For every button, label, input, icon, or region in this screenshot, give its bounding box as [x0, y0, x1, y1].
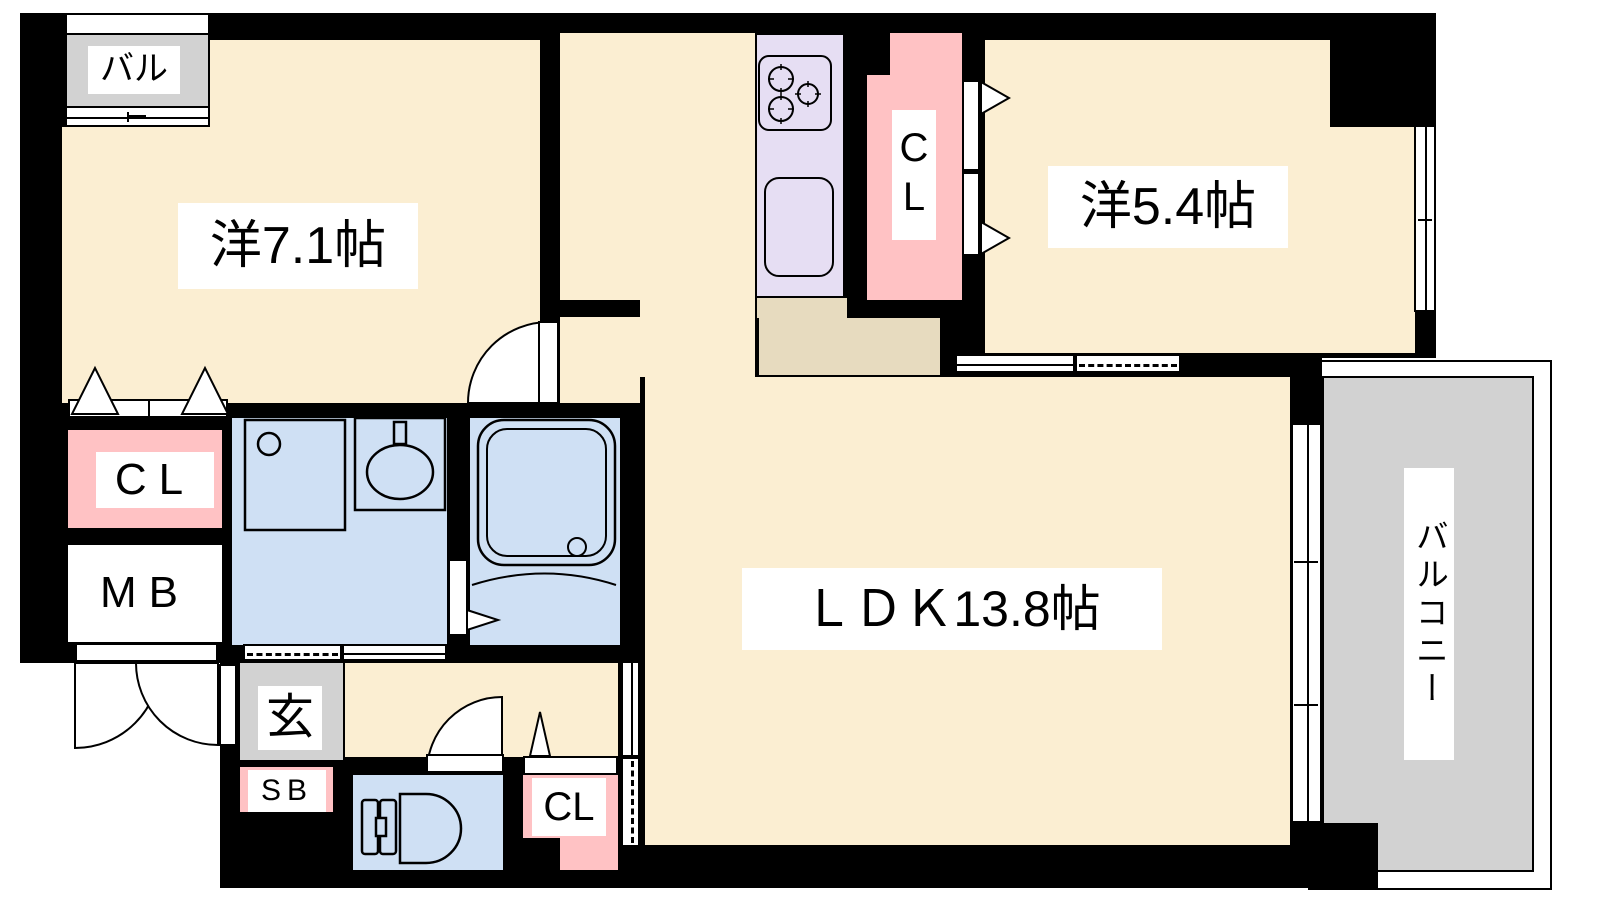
stove-icon: [759, 56, 831, 130]
label-ldk: ＬＤＫ13.8帖: [742, 568, 1162, 650]
label-entrance: 玄: [258, 686, 322, 750]
label-western-5-4: 洋5.4帖: [1048, 166, 1288, 248]
floor-plan: MB: [0, 0, 1600, 900]
label-closet-bedroom-left: CL: [96, 452, 214, 508]
kitchen-sink-icon: [765, 178, 833, 276]
folding-door-closet-left-icon: [72, 368, 228, 414]
label-western-7-1: 洋7.1帖: [178, 203, 418, 289]
washing-machine-icon: [245, 420, 345, 530]
bathtub-icon: [472, 420, 616, 585]
door-swing-toilet-icon: [427, 697, 503, 772]
folding-door-closet-hall-icon: [530, 712, 550, 756]
label-small-balcony: バル: [88, 46, 180, 94]
folding-door-closet-right-icon: [981, 82, 1009, 254]
label-closet-bedroom-right: CL: [892, 110, 936, 240]
label-closet-hall: CL: [532, 778, 606, 836]
toilet-icon: [362, 794, 461, 863]
folding-door-bathroom-icon: [449, 560, 498, 635]
fixtures-layer: [0, 0, 1600, 900]
washbasin-icon: [355, 418, 445, 510]
label-balcony: バルコニー: [1404, 468, 1454, 760]
label-shoe-box: SB: [248, 770, 326, 812]
door-swing-western-7-1-icon: [468, 322, 558, 403]
entrance-double-door-icon: [75, 663, 236, 748]
